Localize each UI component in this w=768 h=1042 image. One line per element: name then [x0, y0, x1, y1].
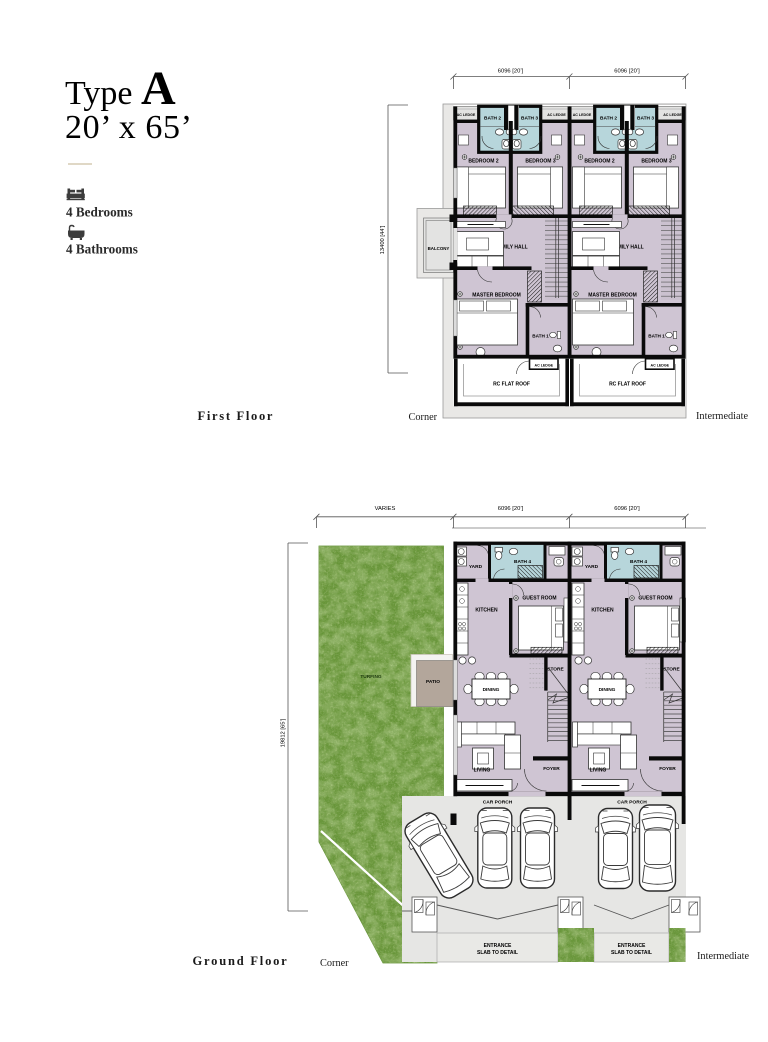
svg-text:20’ x 65’: 20’ x 65’: [65, 109, 193, 146]
svg-text:6096 [20’]: 6096 [20’]: [498, 69, 524, 75]
svg-text:Ground Floor: Ground Floor: [193, 954, 289, 968]
svg-text:ENTRANCE: ENTRANCE: [618, 943, 646, 949]
svg-text:6096 [20’]: 6096 [20’]: [614, 506, 640, 512]
svg-text:BALCONY: BALCONY: [428, 246, 450, 251]
svg-text:SLAB TO DETAIL: SLAB TO DETAIL: [611, 950, 652, 956]
svg-text:13400 [44’]: 13400 [44’]: [380, 225, 386, 254]
svg-text:ENTRANCE: ENTRANCE: [484, 943, 512, 949]
svg-text:First Floor: First Floor: [198, 409, 275, 423]
svg-text:Intermediate: Intermediate: [697, 951, 749, 962]
svg-text:Type A: Type A: [65, 62, 176, 115]
svg-text:6096 [20’]: 6096 [20’]: [614, 69, 640, 75]
svg-text:Corner: Corner: [409, 412, 438, 423]
svg-text:CAR PORCH: CAR PORCH: [617, 800, 647, 806]
svg-text:TURFING: TURFING: [360, 674, 382, 680]
svg-text:CAR PORCH: CAR PORCH: [483, 800, 513, 806]
svg-text:VARIES: VARIES: [375, 506, 396, 512]
svg-text:4 Bedrooms: 4 Bedrooms: [66, 205, 133, 220]
svg-text:PATIO: PATIO: [426, 679, 440, 685]
svg-text:6096 [20’]: 6096 [20’]: [498, 506, 524, 512]
svg-text:19812 [65’]: 19812 [65’]: [281, 718, 287, 747]
svg-text:SLAB TO DETAIL: SLAB TO DETAIL: [477, 950, 518, 956]
svg-text:Intermediate: Intermediate: [696, 411, 748, 422]
svg-text:4 Bathrooms: 4 Bathrooms: [66, 242, 138, 257]
svg-text:Corner: Corner: [320, 958, 349, 969]
